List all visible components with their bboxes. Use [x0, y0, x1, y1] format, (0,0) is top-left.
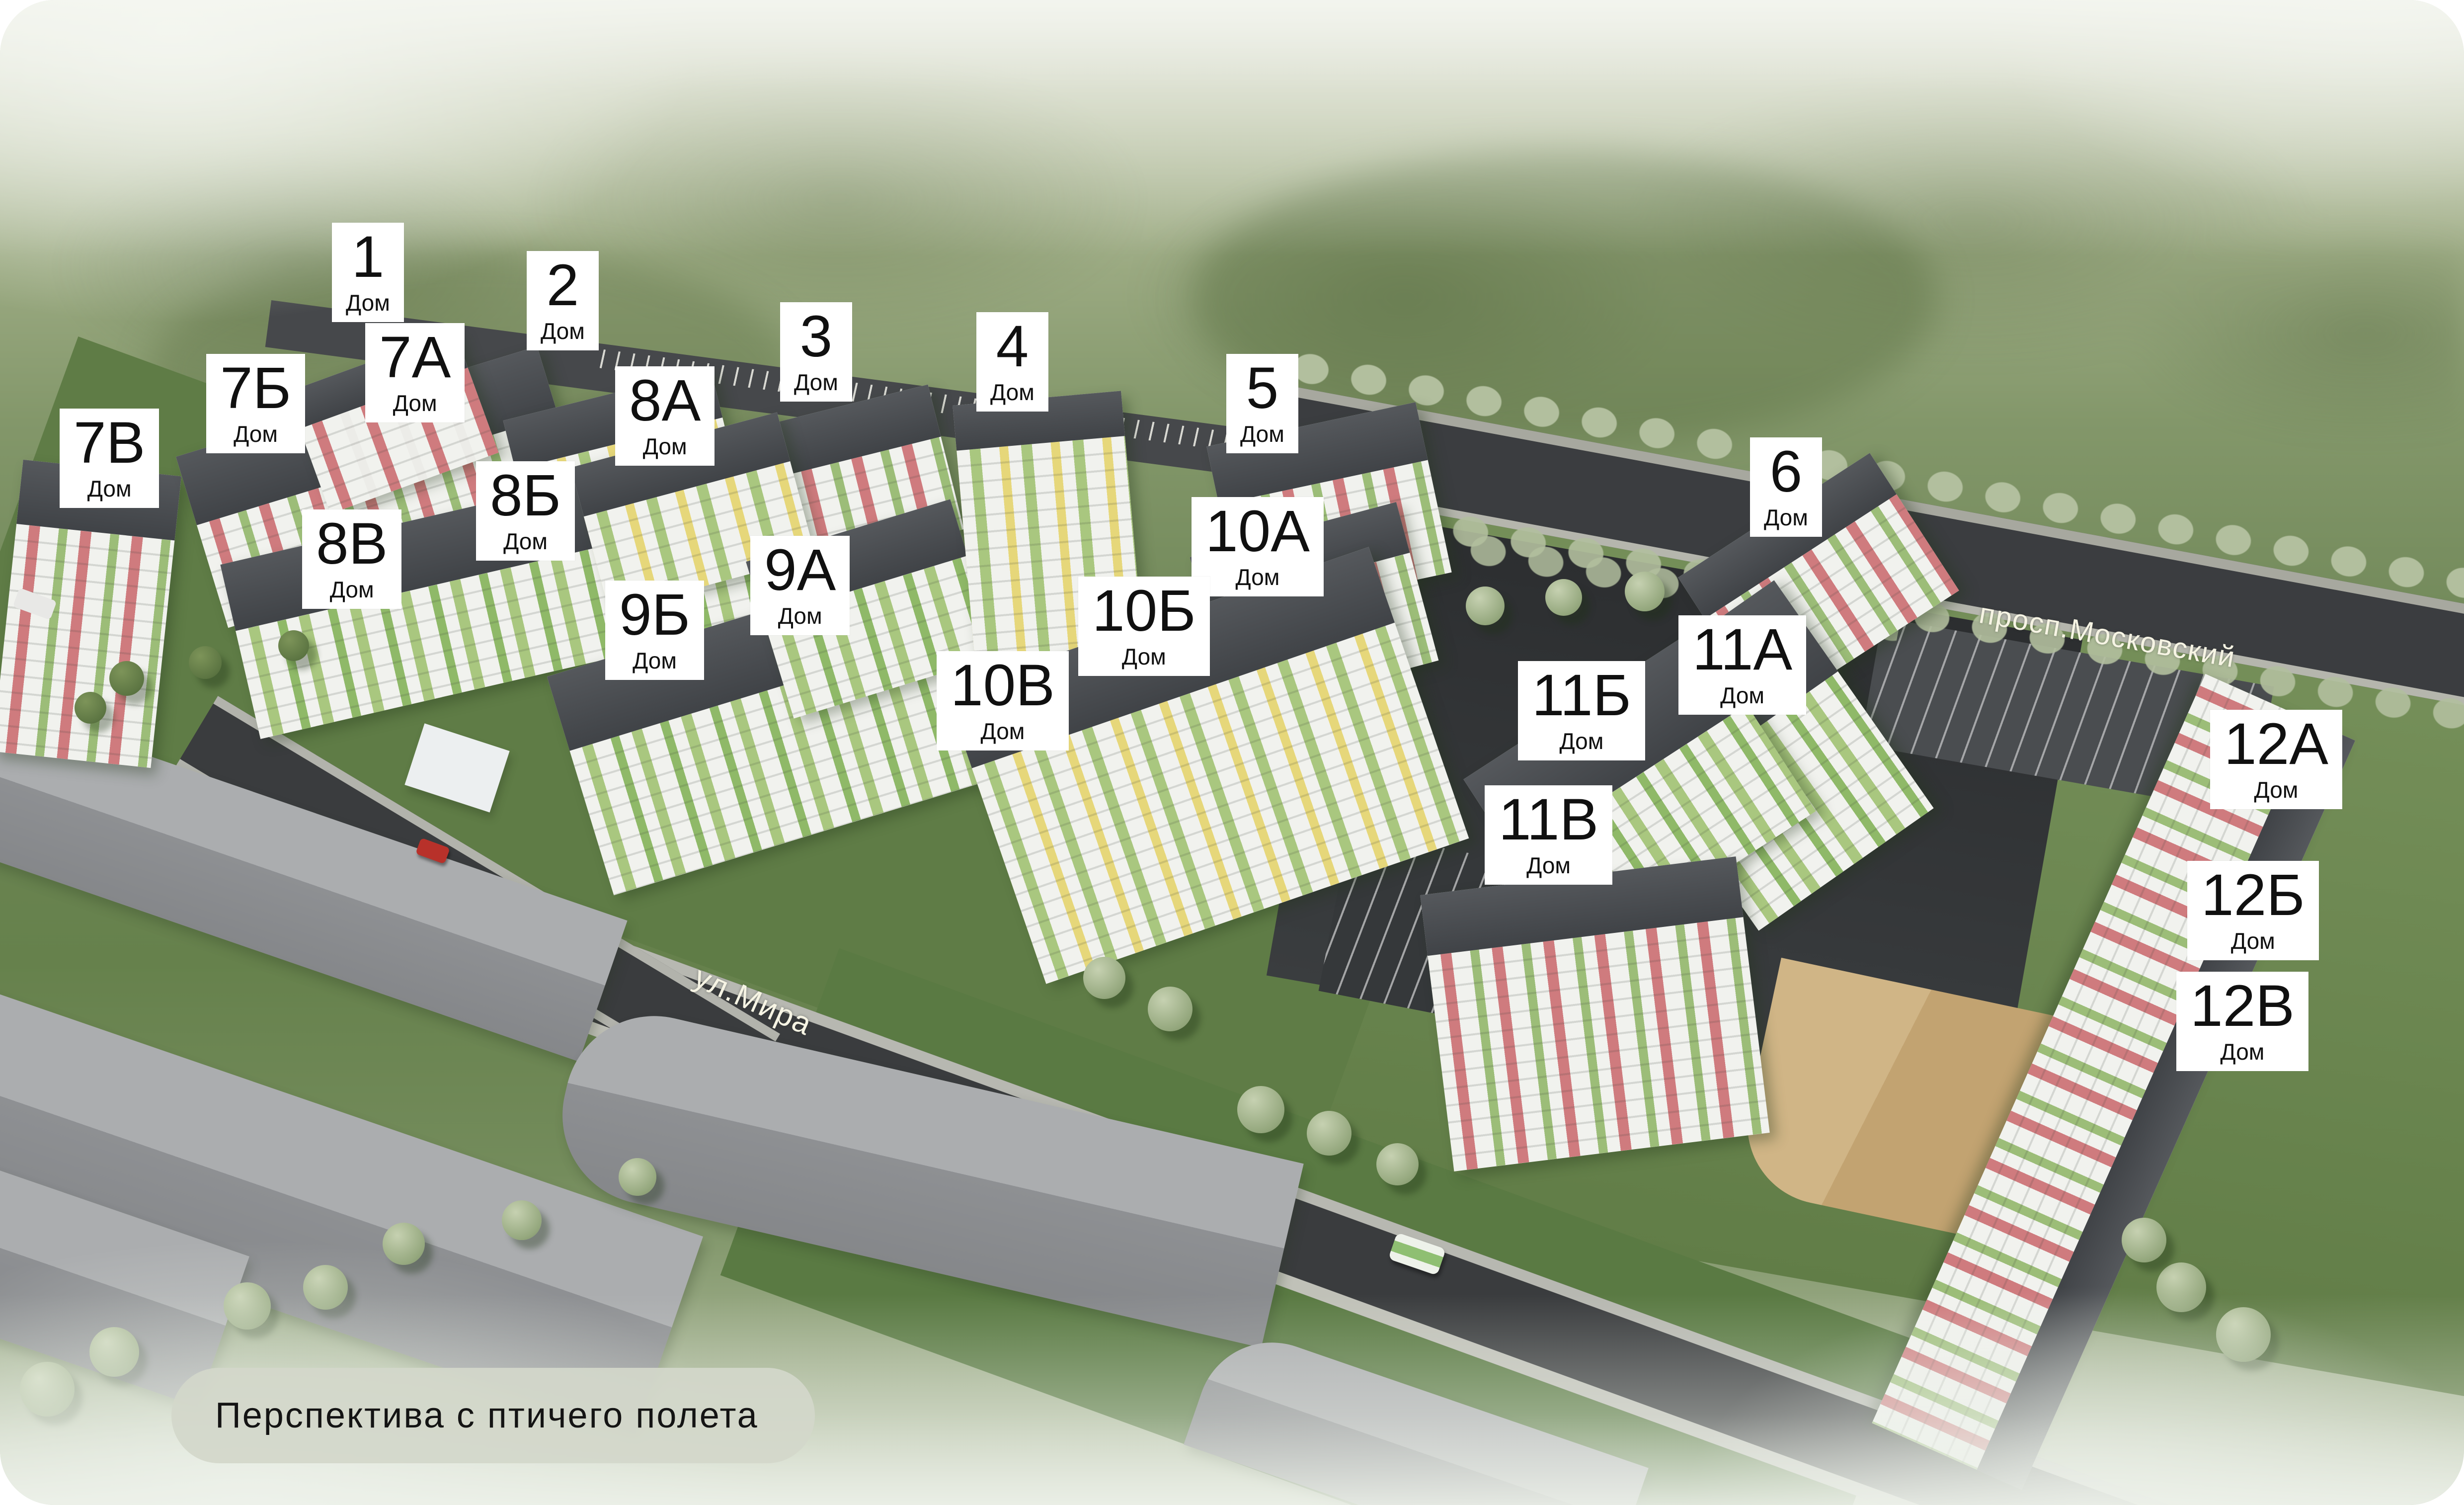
- house-label-11b[interactable]: 11БДом: [1518, 661, 1645, 760]
- house-number: 7В: [74, 414, 145, 472]
- house-number: 12В: [2190, 977, 2295, 1035]
- tree: [1625, 572, 1665, 611]
- house-number: 1: [352, 228, 385, 286]
- house-word: Дом: [541, 320, 585, 342]
- house-word: Дом: [1240, 422, 1284, 445]
- house-label-9b[interactable]: 9БДом: [605, 581, 704, 680]
- house-number: 10А: [1205, 502, 1310, 561]
- house-label-2[interactable]: 2Дом: [527, 251, 599, 350]
- house-word: Дом: [1560, 730, 1604, 752]
- house-label-7a[interactable]: 7АДом: [365, 323, 465, 422]
- house-word: Дом: [1764, 506, 1808, 529]
- tree: [2156, 1262, 2206, 1312]
- tree: [75, 692, 106, 724]
- house-word: Дом: [2221, 1040, 2265, 1063]
- house-word: Дом: [633, 649, 677, 672]
- house-label-12v[interactable]: 12ВДом: [2176, 972, 2308, 1071]
- house-word: Дом: [990, 381, 1034, 404]
- house-label-7b[interactable]: 7БДом: [206, 354, 305, 453]
- caption-text: Перспектива с птичего полета: [215, 1395, 759, 1436]
- tree: [1466, 586, 1505, 625]
- house-word: Дом: [346, 291, 390, 314]
- house-number: 3: [800, 307, 833, 366]
- masterplan-render: ул.Мира просп.Московский 1Дом 2Дом 3Дом …: [0, 0, 2464, 1505]
- house-word: Дом: [794, 371, 838, 394]
- house-label-1[interactable]: 1Дом: [332, 223, 404, 322]
- tree: [1083, 957, 1125, 999]
- house-label-8v[interactable]: 8ВДом: [302, 509, 401, 609]
- house-word: Дом: [393, 392, 437, 415]
- house-number: 7А: [379, 328, 451, 387]
- house-word: Дом: [1526, 854, 1571, 877]
- house-label-10b[interactable]: 10БДом: [1078, 577, 1210, 676]
- tree: [2122, 1218, 2166, 1262]
- house-label-4[interactable]: 4Дом: [976, 312, 1048, 412]
- house-word: Дом: [2254, 778, 2299, 801]
- house-number: 12Б: [2201, 866, 2305, 924]
- house-label-10a[interactable]: 10АДом: [1192, 497, 1324, 596]
- tree: [1148, 987, 1192, 1031]
- house-number: 8А: [629, 371, 701, 430]
- tree: [619, 1158, 656, 1196]
- tree: [278, 630, 309, 661]
- house-number: 9А: [764, 541, 836, 599]
- house-word: Дом: [2231, 929, 2275, 952]
- house-number: 10В: [951, 656, 1055, 715]
- tree: [189, 646, 222, 679]
- house-word: Дом: [1122, 645, 1166, 668]
- house-word: Дом: [1720, 684, 1764, 707]
- house-word: Дом: [981, 720, 1025, 743]
- tree: [1237, 1086, 1284, 1133]
- caption-pill: Перспектива с птичего полета: [171, 1368, 815, 1463]
- house-label-6[interactable]: 6Дом: [1750, 437, 1822, 537]
- house-number: 5: [1246, 359, 1279, 418]
- house-number: 11Б: [1532, 666, 1631, 725]
- tree: [109, 661, 144, 696]
- house-number: 12А: [2224, 715, 2328, 773]
- house-label-9a[interactable]: 9АДом: [750, 536, 850, 635]
- tree: [1545, 579, 1582, 616]
- house-number: 6: [1770, 442, 1803, 501]
- house-label-12a[interactable]: 12АДом: [2210, 710, 2342, 809]
- house-number: 11В: [1499, 790, 1598, 849]
- house-label-12b[interactable]: 12БДом: [2187, 861, 2319, 960]
- house-number: 7Б: [220, 359, 291, 418]
- building-render-11v: [1420, 856, 1769, 1171]
- tree: [502, 1200, 542, 1240]
- house-number: 8В: [316, 514, 388, 573]
- tree: [1376, 1143, 1419, 1185]
- house-label-11v[interactable]: 11ВДом: [1485, 785, 1612, 885]
- house-word: Дом: [1236, 566, 1280, 588]
- house-label-5[interactable]: 5Дом: [1226, 354, 1298, 453]
- house-word: Дом: [330, 578, 374, 601]
- tree: [303, 1265, 348, 1310]
- house-word: Дом: [503, 530, 548, 553]
- house-label-7v[interactable]: 7ВДом: [60, 409, 159, 508]
- house-label-8b[interactable]: 8БДом: [476, 461, 575, 561]
- tree: [2216, 1307, 2271, 1362]
- tree: [89, 1327, 139, 1377]
- house-label-11a[interactable]: 11АДом: [1678, 615, 1806, 715]
- house-label-3[interactable]: 3Дом: [780, 302, 852, 402]
- house-label-8a[interactable]: 8АДом: [615, 366, 715, 466]
- tree: [224, 1282, 271, 1330]
- house-number: 11А: [1692, 620, 1792, 679]
- house-number: 2: [547, 256, 579, 315]
- house-label-10v[interactable]: 10ВДом: [937, 651, 1069, 751]
- house-word: Дом: [643, 435, 687, 458]
- tree: [383, 1223, 425, 1265]
- house-number: 9Б: [619, 585, 690, 644]
- house-number: 4: [996, 317, 1029, 376]
- house-number: 8Б: [490, 466, 561, 525]
- house-word: Дом: [87, 477, 132, 500]
- tree: [1307, 1111, 1351, 1156]
- house-number: 10Б: [1092, 582, 1196, 640]
- tree: [20, 1362, 75, 1417]
- house-word: Дом: [778, 604, 822, 627]
- house-word: Дом: [234, 422, 278, 445]
